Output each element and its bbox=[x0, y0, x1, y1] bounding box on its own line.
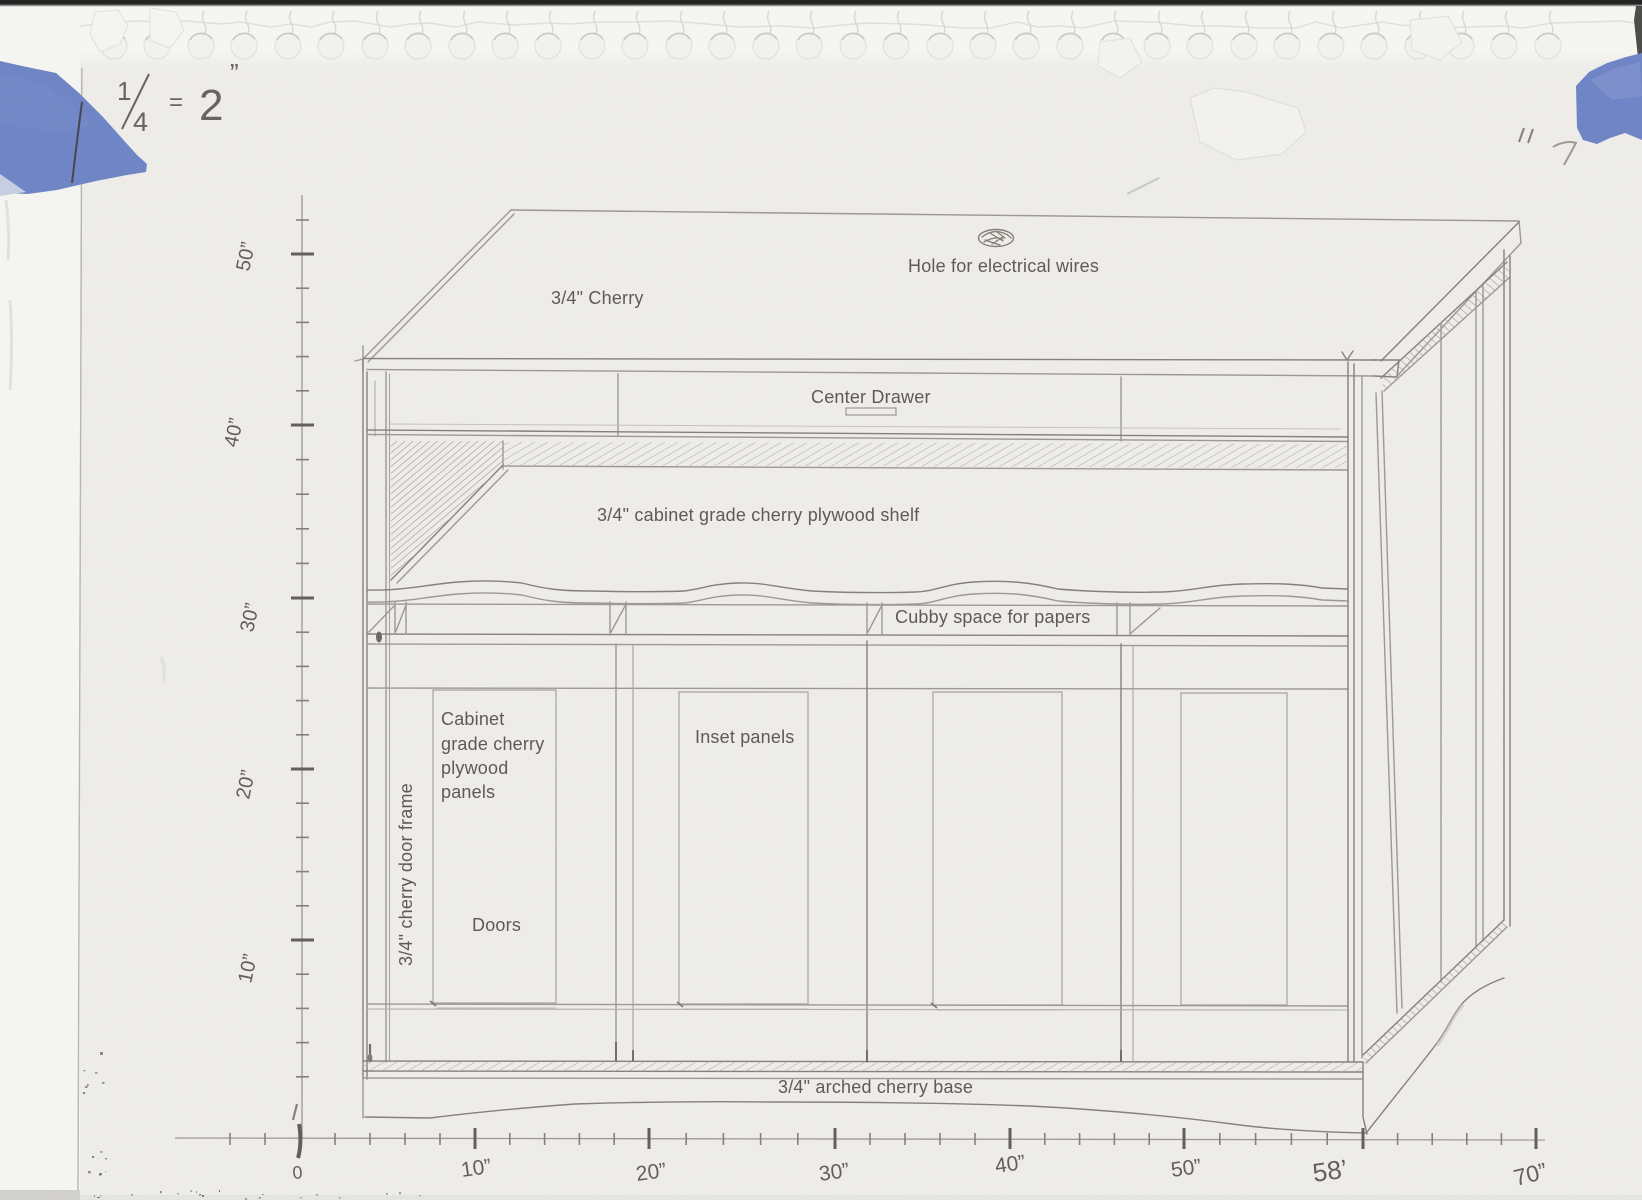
svg-text:panels: panels bbox=[441, 782, 495, 802]
svg-text:4: 4 bbox=[133, 107, 148, 137]
svg-text:3/4" cherry door frame: 3/4" cherry door frame bbox=[396, 783, 416, 966]
svg-text:Center Drawer: Center Drawer bbox=[811, 387, 931, 407]
svg-text:”: ” bbox=[230, 58, 239, 88]
svg-text:Inset panels: Inset panels bbox=[695, 727, 794, 747]
svg-text:3/4" cabinet grade cherry plyw: 3/4" cabinet grade cherry plywood shelf bbox=[597, 505, 920, 525]
svg-text:1: 1 bbox=[117, 76, 131, 106]
svg-text:58’: 58’ bbox=[1311, 1153, 1350, 1188]
svg-text:2: 2 bbox=[199, 81, 223, 130]
svg-text:3/4" Cherry: 3/4" Cherry bbox=[551, 288, 644, 308]
svg-text:20”: 20” bbox=[634, 1159, 667, 1186]
svg-text:0: 0 bbox=[292, 1162, 304, 1183]
svg-text:Doors: Doors bbox=[472, 915, 521, 935]
svg-text:50”: 50” bbox=[1169, 1155, 1202, 1182]
svg-text:30”: 30” bbox=[817, 1159, 850, 1186]
svg-text:10”: 10” bbox=[459, 1155, 492, 1182]
svg-text:grade cherry: grade cherry bbox=[441, 734, 544, 754]
svg-text:3/4" arched cherry base: 3/4" arched cherry base bbox=[778, 1077, 973, 1097]
svg-text:=: = bbox=[169, 89, 183, 116]
svg-text:Cubby space for papers: Cubby space for papers bbox=[895, 607, 1091, 627]
svg-text:Cabinet: Cabinet bbox=[441, 709, 504, 729]
svg-text:40”: 40” bbox=[993, 1151, 1026, 1178]
svg-text:Hole for electrical wires: Hole for electrical wires bbox=[908, 256, 1099, 276]
svg-text:plywood: plywood bbox=[441, 758, 508, 778]
